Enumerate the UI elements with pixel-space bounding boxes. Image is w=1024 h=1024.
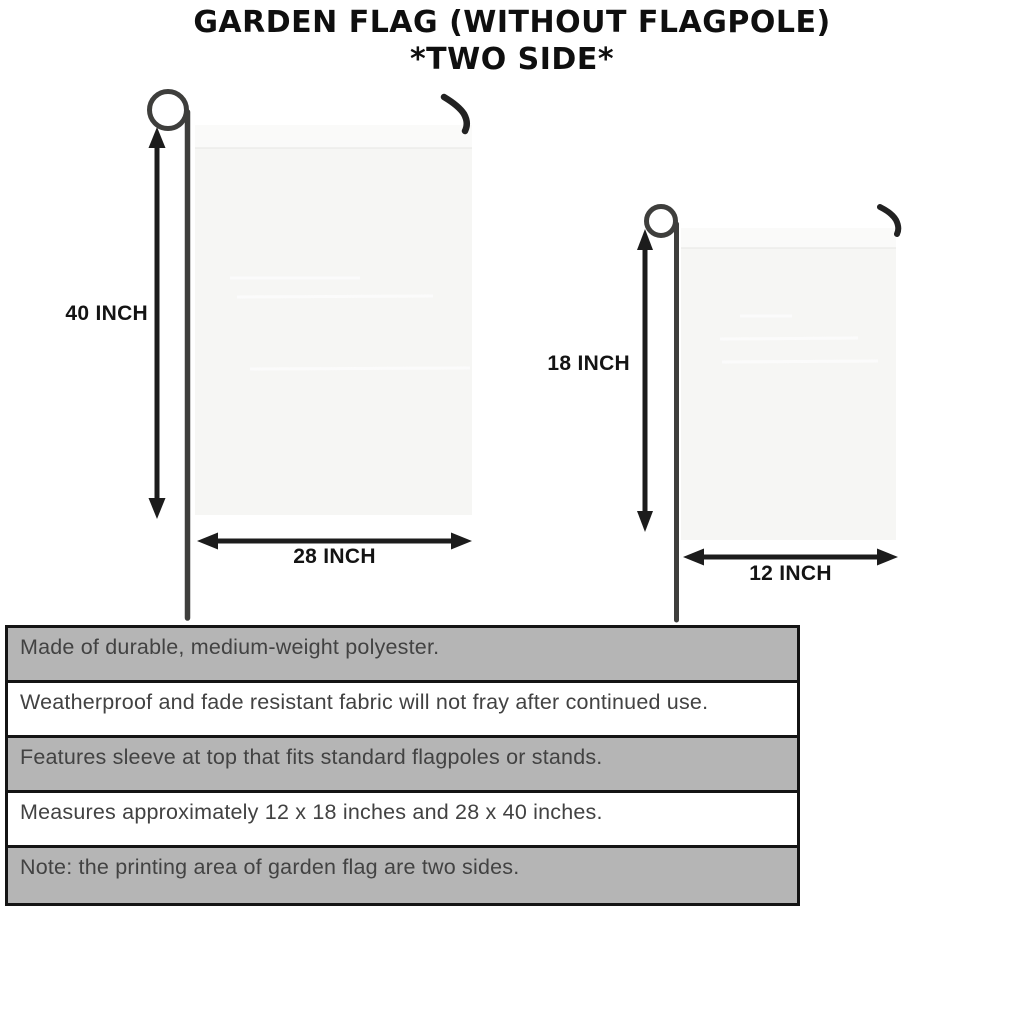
large-flag-diagram [149,92,473,619]
large-flag-height-arrow [149,127,166,519]
small-flag-height-arrow [637,229,653,532]
large-flagpole-loop [150,92,187,129]
feature-row: Weatherproof and fade resistant fabric w… [8,683,797,738]
garden-flag-product-image: GARDEN FLAG (WITHOUT FLAGPOLE) *TWO SIDE… [0,0,1024,1024]
small-flag-diagram [637,207,898,621]
feature-row: Measures approximately 12 x 18 inches an… [8,793,797,848]
arrow-head-down-icon [637,511,653,532]
feature-row: Note: the printing area of garden flag a… [8,848,797,903]
small-flag-canvas [681,228,896,540]
feature-row: Features sleeve at top that fits standar… [8,738,797,793]
small-flagpole-loop [647,207,676,236]
large-flag-canvas [195,125,472,515]
small-flag-width-label: 12 INCH [683,562,898,586]
feature-row: Made of durable, medium-weight polyester… [8,628,797,683]
large-flag-height-label: 40 INCH [36,302,148,326]
features-table: Made of durable, medium-weight polyester… [5,625,800,906]
large-flag-width-label: 28 INCH [197,545,472,569]
arrow-head-down-icon [149,498,166,519]
small-flag-height-label: 18 INCH [516,352,630,376]
small-flag-sleeve [681,228,896,248]
large-flag-sleeve [195,125,472,148]
